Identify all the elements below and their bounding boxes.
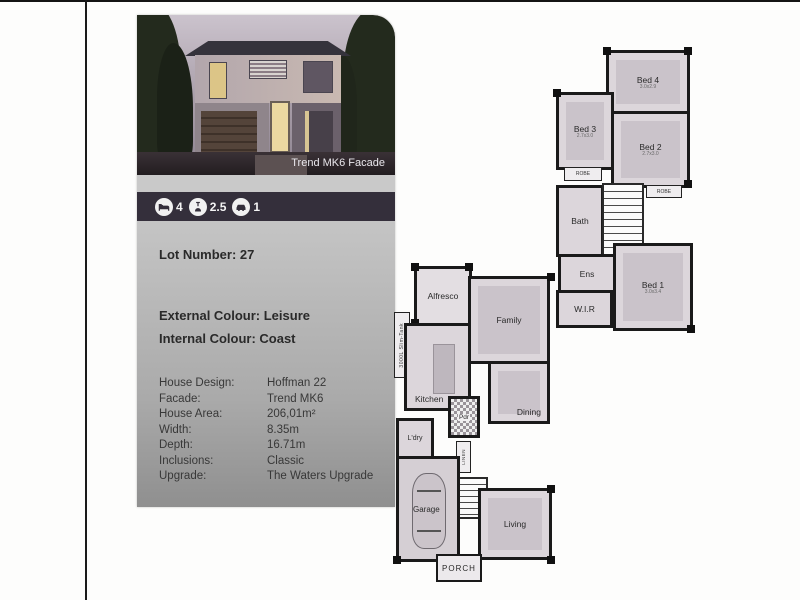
detail-row-house-design: House Design: Hoffman 22 — [159, 376, 381, 392]
upper-window-middle — [249, 60, 287, 79]
robe-bed3: ROBE — [564, 167, 602, 181]
lot-number: Lot Number: 27 — [159, 247, 381, 262]
alfresco-post — [465, 263, 473, 271]
card-divider-strip — [137, 175, 395, 192]
garage-door — [201, 111, 257, 153]
scan-edge-left — [85, 0, 87, 600]
room-ensuite: Ens — [558, 254, 616, 293]
tree-left-2 — [157, 43, 193, 163]
shower-icon — [189, 198, 207, 216]
wall-pier — [684, 47, 692, 55]
room-bed1: Bed 1 3.0x3.4 — [613, 243, 693, 331]
room-alfresco: Alfresco — [414, 266, 472, 326]
internal-colour: Internal Colour: Coast — [159, 327, 381, 350]
kitchen-island — [433, 344, 455, 394]
facade-caption: Trend MK6 Facade — [291, 157, 385, 169]
ground-floor-plan: Alfresco Family 3000L Slim-Tank Kitchen … — [392, 256, 562, 586]
room-family: Family — [468, 276, 550, 364]
house-info-card: Trend MK6 Facade 4 2.5 1 — [137, 15, 395, 507]
robe-bed2: ROBE — [646, 185, 682, 198]
scan-edge-top — [0, 0, 800, 2]
detail-row-house-area: House Area: 206,01m² — [159, 407, 381, 423]
detail-row-facade: Facade: Trend MK6 — [159, 392, 381, 408]
car-spaces-stat: 1 — [232, 198, 260, 216]
bedrooms-stat: 4 — [155, 198, 183, 216]
facade-photo: Trend MK6 Facade — [137, 15, 395, 175]
room-bed4: Bed 4 3.0x2.9 — [606, 50, 690, 114]
room-porch: PORCH — [436, 554, 482, 582]
wall-pier — [393, 556, 401, 564]
scanned-brochure-page: Trend MK6 Facade 4 2.5 1 — [0, 0, 800, 600]
room-dining: Dining — [488, 361, 550, 424]
alfresco-post — [411, 263, 419, 271]
detail-row-upgrade: Upgrade: The Waters Upgrade — [159, 469, 381, 485]
house-roof — [185, 41, 351, 56]
room-laundry: L'dry — [396, 418, 434, 459]
detail-row-width: Width: 8.35m — [159, 423, 381, 439]
entry-door — [270, 101, 290, 153]
room-garage: Garage — [396, 456, 460, 562]
wall-pier — [603, 47, 611, 55]
colour-selections: External Colour: Leisure Internal Colour… — [159, 304, 381, 350]
card-body: Lot Number: 27 External Colour: Leisure … — [137, 221, 395, 485]
wall-pier — [687, 325, 695, 333]
upper-window-left — [209, 62, 227, 99]
details-table: House Design: Hoffman 22 Facade: Trend M… — [159, 376, 381, 485]
bathrooms-stat: 2.5 — [189, 198, 227, 216]
detail-row-inclusions: Inclusions: Classic — [159, 454, 381, 470]
bedrooms-count: 4 — [176, 200, 183, 214]
stats-band: 4 2.5 1 — [137, 192, 395, 221]
room-bed3: Bed 3 2.7x3.0 — [556, 92, 614, 170]
room-bed2: Bed 2 2.7x3.0 — [611, 111, 690, 188]
bed-icon — [155, 198, 173, 216]
car-spaces-count: 1 — [253, 200, 260, 214]
upper-window-right — [303, 61, 333, 93]
room-bath: Bath — [556, 185, 604, 257]
wall-pier — [553, 89, 561, 97]
car-icon — [232, 198, 250, 216]
external-colour: External Colour: Leisure — [159, 304, 381, 327]
wall-pier — [547, 485, 555, 493]
room-powder: Pdr — [448, 396, 480, 438]
wall-pier — [547, 273, 555, 281]
room-living: Living — [478, 488, 552, 560]
wall-pier — [547, 556, 555, 564]
detail-row-depth: Depth: 16.71m — [159, 438, 381, 454]
upper-floor-plan: Bed 4 3.0x2.9 Bed 3 2.7x3.0 Bed 2 2.7x3.… — [548, 30, 712, 332]
bathrooms-count: 2.5 — [210, 200, 227, 214]
lower-glass-door — [305, 111, 333, 153]
wall-pier — [684, 180, 692, 188]
room-wir: W.I.R — [556, 290, 613, 328]
